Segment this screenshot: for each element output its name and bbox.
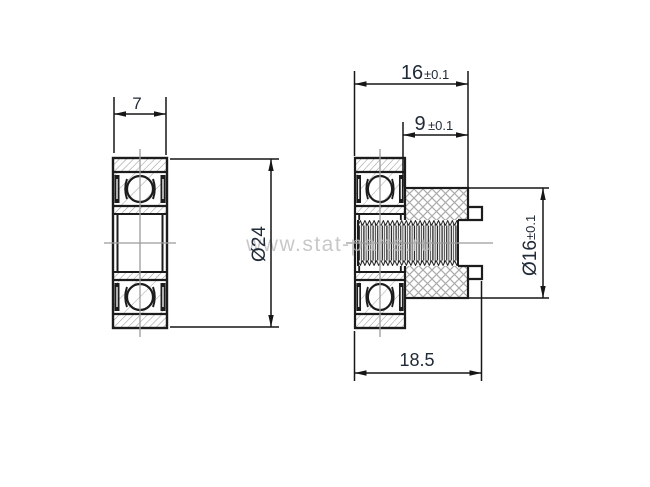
label-bearing-od: Ø24: [249, 226, 270, 262]
label-hub-od-tol: ±0.1: [523, 215, 538, 240]
label-bearing-width: 7: [132, 94, 141, 113]
technical-drawing-page: www.stat-parts.ru: [0, 0, 650, 487]
watermark-text: www.stat-parts.ru: [245, 233, 434, 256]
dimension-labels: 7 Ø24 16 ±0.1 9 ±0.1 Ø16 ±0.1 18.5: [132, 62, 541, 370]
technical-drawing: www.stat-parts.ru: [0, 0, 650, 487]
label-hub-width: 9: [414, 113, 425, 135]
label-hub-od: Ø16: [520, 240, 541, 276]
dimension-lines: [114, 71, 549, 381]
label-assembly-width-tol: ±0.1: [424, 67, 449, 82]
label-overall-length: 18.5: [399, 350, 434, 370]
label-assembly-width: 16: [401, 62, 423, 84]
label-hub-width-tol: ±0.1: [428, 118, 453, 133]
